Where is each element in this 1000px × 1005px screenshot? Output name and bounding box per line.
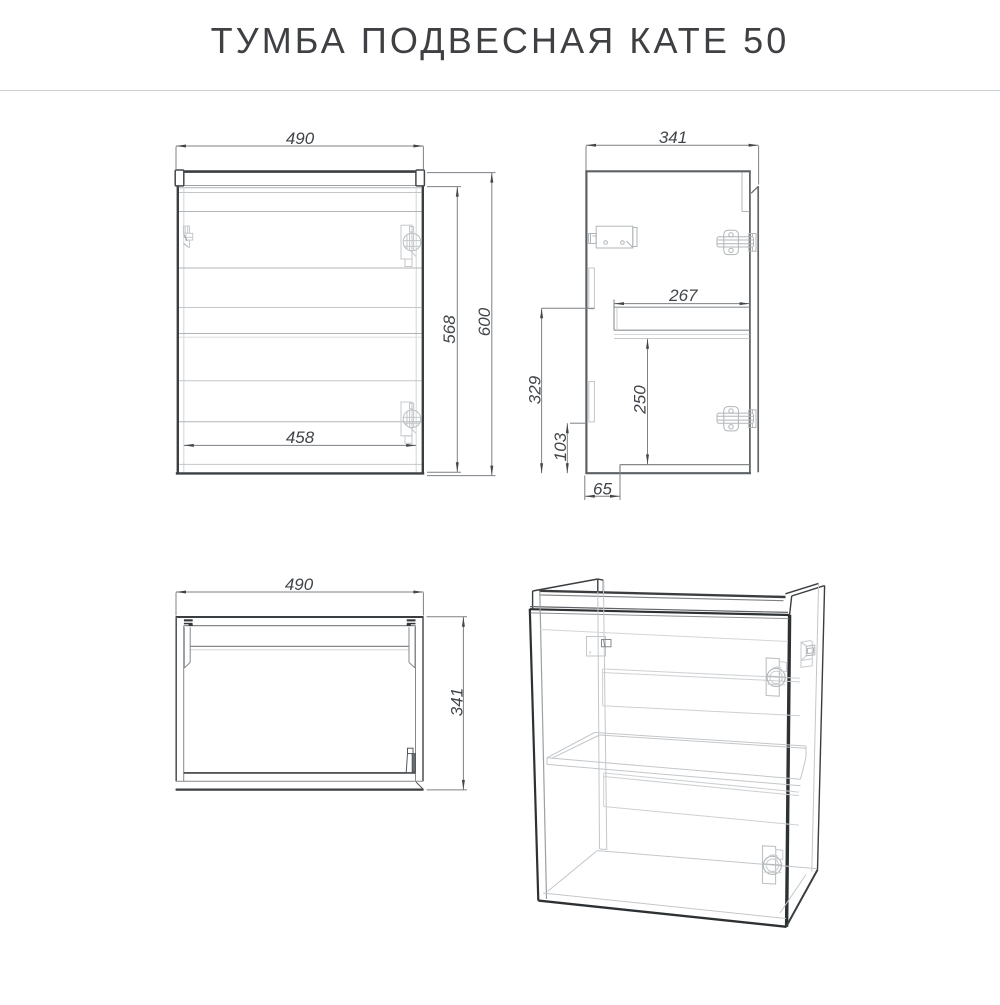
- svg-text:65: 65: [593, 479, 612, 498]
- svg-text:ТУМБА ПОДВЕСНАЯ КАТЕ 50: ТУМБА ПОДВЕСНАЯ КАТЕ 50: [211, 20, 790, 61]
- svg-text:267: 267: [668, 286, 698, 305]
- svg-text:490: 490: [286, 129, 315, 148]
- svg-text:490: 490: [285, 575, 314, 594]
- svg-text:341: 341: [659, 128, 687, 147]
- svg-text:250: 250: [631, 385, 650, 415]
- svg-text:600: 600: [475, 307, 494, 336]
- svg-text:103: 103: [551, 432, 570, 461]
- svg-text:341: 341: [447, 688, 466, 716]
- svg-text:458: 458: [286, 428, 315, 447]
- svg-text:568: 568: [440, 315, 459, 344]
- svg-text:329: 329: [526, 375, 545, 404]
